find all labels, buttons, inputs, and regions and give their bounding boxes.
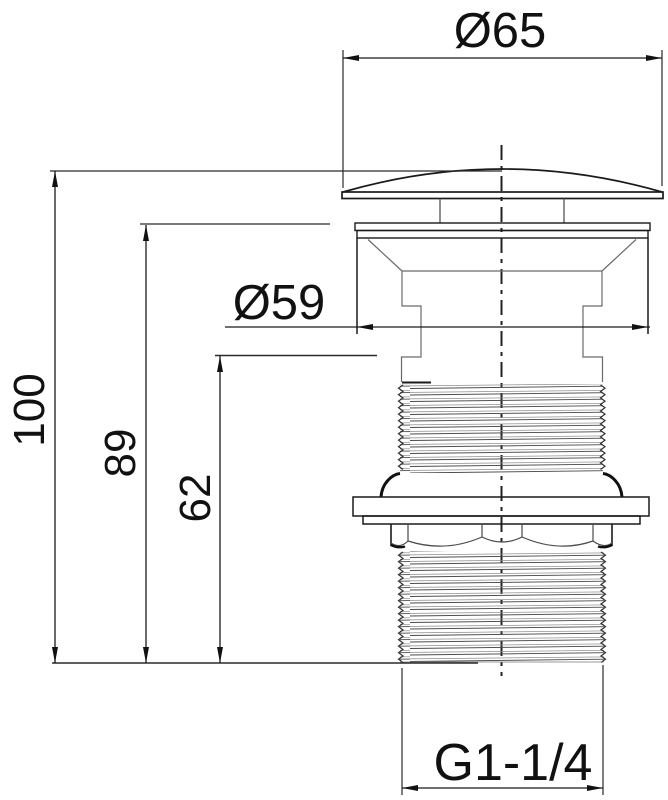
height-to-shoulder-label: 62: [171, 474, 220, 523]
cap-diameter-label: Ø65: [454, 4, 547, 58]
lower-thread: [399, 551, 606, 663]
drain-fitting-technical-drawing: Ø65 Ø59 100 89 62 G1-1/4: [0, 0, 668, 800]
technical-drawing-sheet: Ø65 Ø59 100 89 62 G1-1/4: [0, 0, 668, 800]
height-to-flange-label: 89: [96, 429, 145, 478]
top-flange: [355, 223, 650, 238]
overall-height-label: 100: [5, 373, 54, 446]
thread-size-label: G1-1/4: [434, 734, 593, 792]
body-diameter-label: Ø59: [233, 276, 326, 330]
upper-thread: [399, 384, 606, 473]
